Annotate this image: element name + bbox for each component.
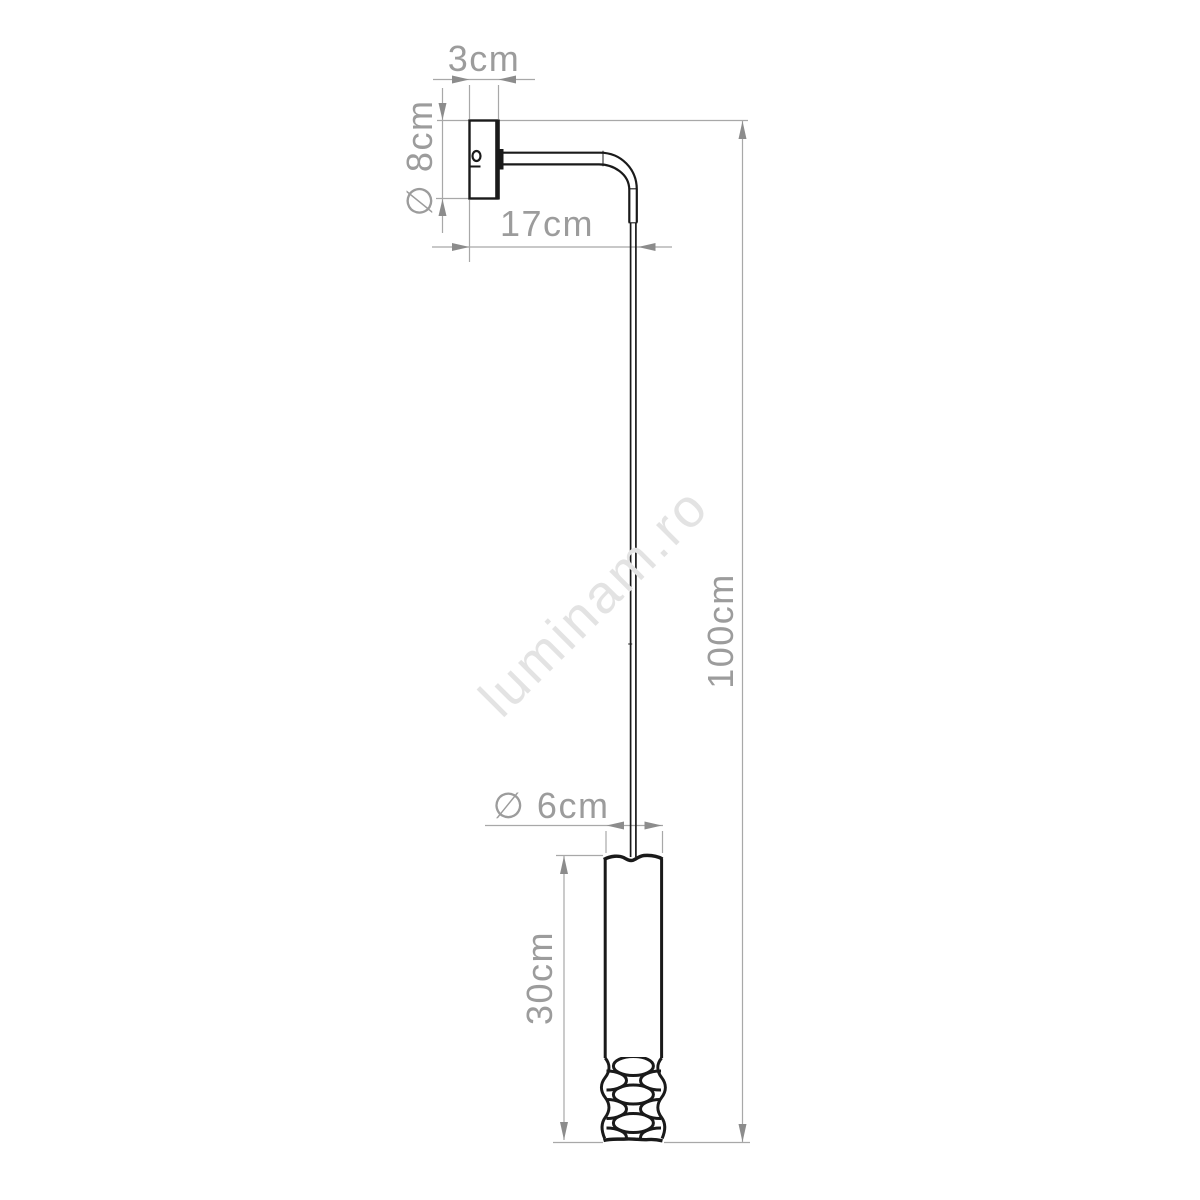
- dim-label-plate-width: 3cm: [448, 41, 521, 77]
- dim-label-arm-length: 17cm: [500, 206, 594, 242]
- wall-plate: [470, 120, 498, 200]
- dim-label-drop-height: 100cm: [703, 573, 739, 689]
- dim-label-shade-diameter: ∅ 6cm: [493, 788, 610, 824]
- lamp-shade: [587, 855, 681, 1147]
- shade-pattern: [587, 1057, 681, 1148]
- dim-label-plate-diameter: ∅ 8cm: [402, 100, 438, 217]
- dim-label-shade-height: 30cm: [522, 931, 558, 1025]
- technical-drawing-canvas: luminam.ro 3cm ∅ 8cm 17cm ∅ 6cm 30cm 100…: [0, 0, 1200, 1200]
